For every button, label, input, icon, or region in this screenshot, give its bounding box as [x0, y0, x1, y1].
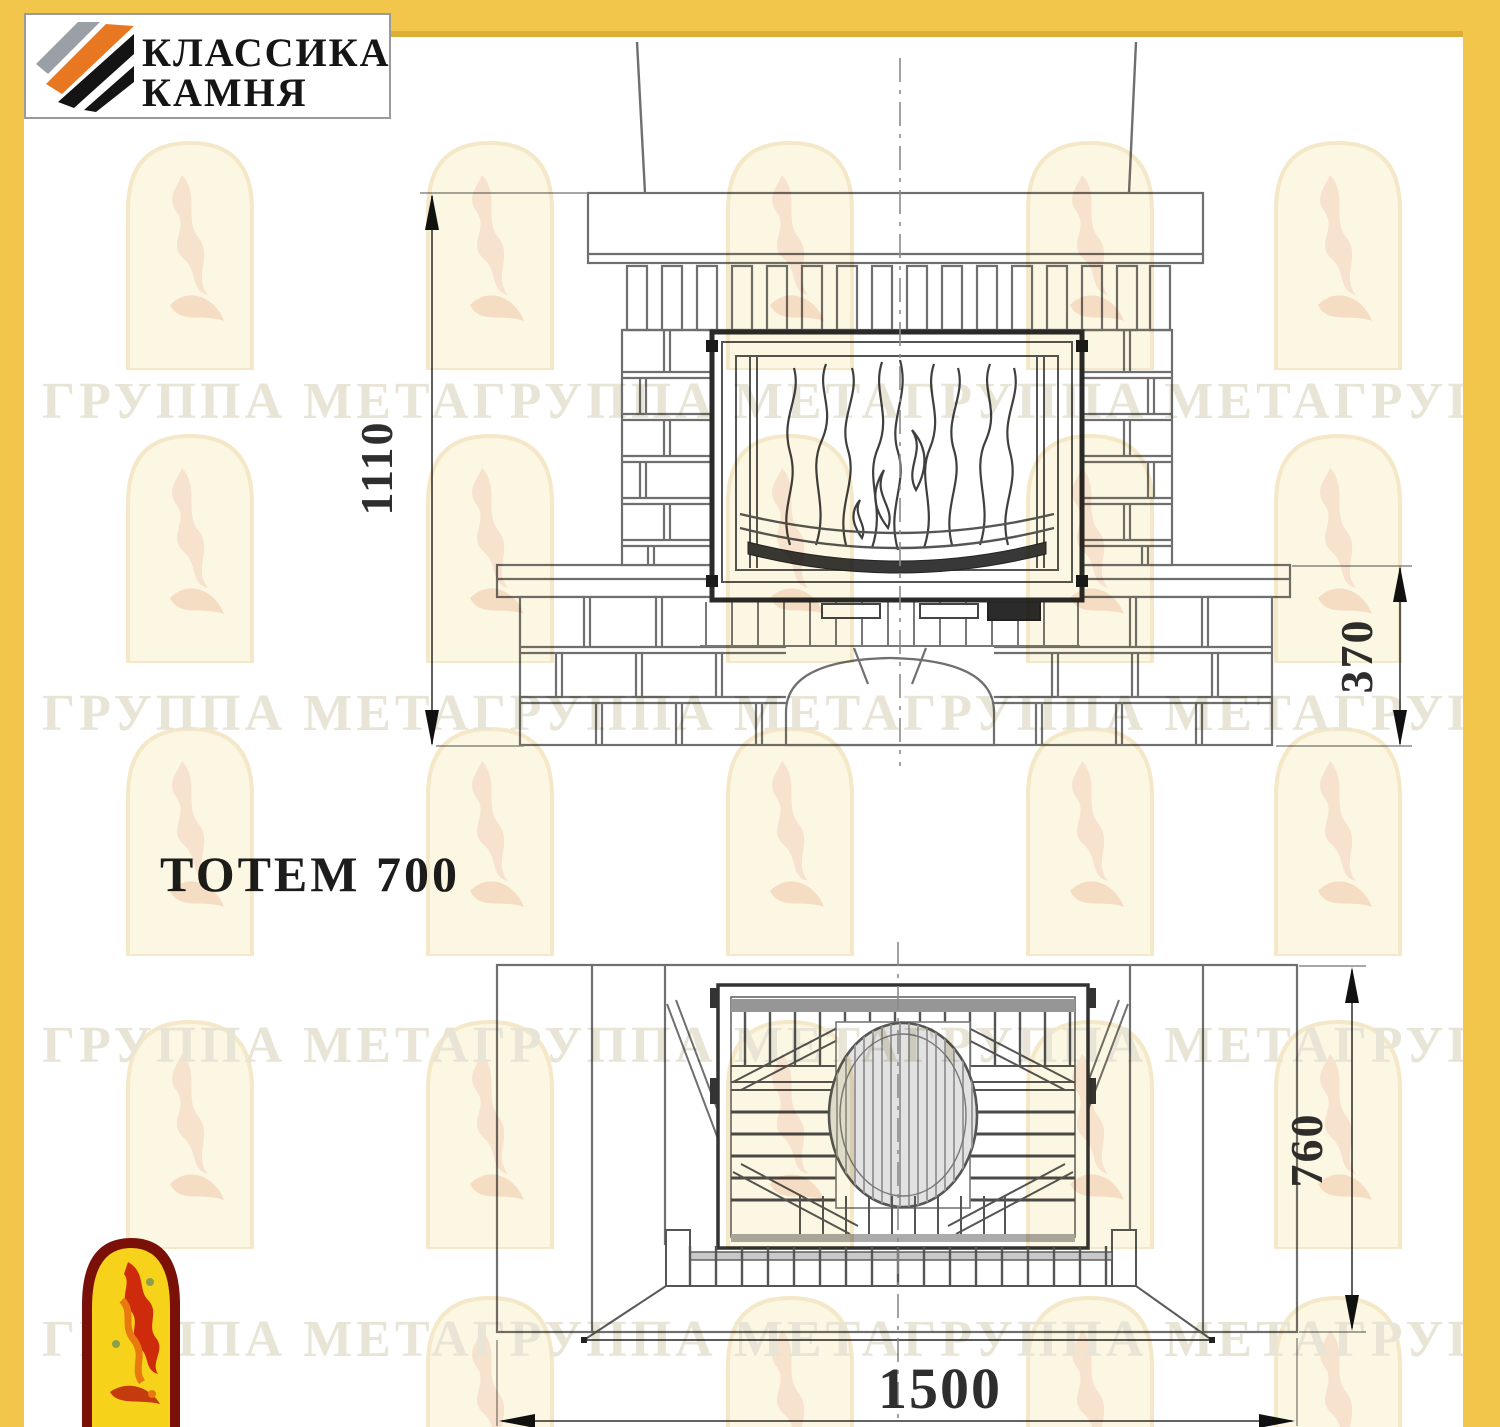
watermark-text-row: ГРУППА МЕТАГРУППА МЕТАГРУППА МЕТАГРУППА …: [42, 1017, 1500, 1074]
spec-sheet-page: 1110 370: [0, 0, 1500, 1427]
brand-logo-text-line1: КЛАССИКА: [142, 30, 390, 75]
page-border-left: [0, 0, 24, 1427]
dim-label-total-height: 1110: [351, 421, 402, 516]
watermark-text-row: ГРУППА МЕТАГРУППА МЕТАГРУППА МЕТАГРУППА …: [42, 685, 1500, 742]
watermark-text-row: ГРУППА МЕТАГРУППА МЕТАГРУППА МЕТАГРУППА …: [42, 1311, 1500, 1368]
page-border-right: [1463, 0, 1500, 1427]
technical-drawing: 1110 370: [0, 0, 1500, 1427]
watermark-text-row: ГРУППА МЕТАГРУППА МЕТАГРУППА МЕТАГРУППА …: [42, 373, 1500, 430]
meta-emblem: [82, 1238, 180, 1427]
brand-logo: КЛАССИКА КАМНЯ: [25, 14, 390, 118]
brand-logo-text-line2: КАМНЯ: [142, 70, 308, 115]
brick-column-left: [622, 330, 712, 565]
